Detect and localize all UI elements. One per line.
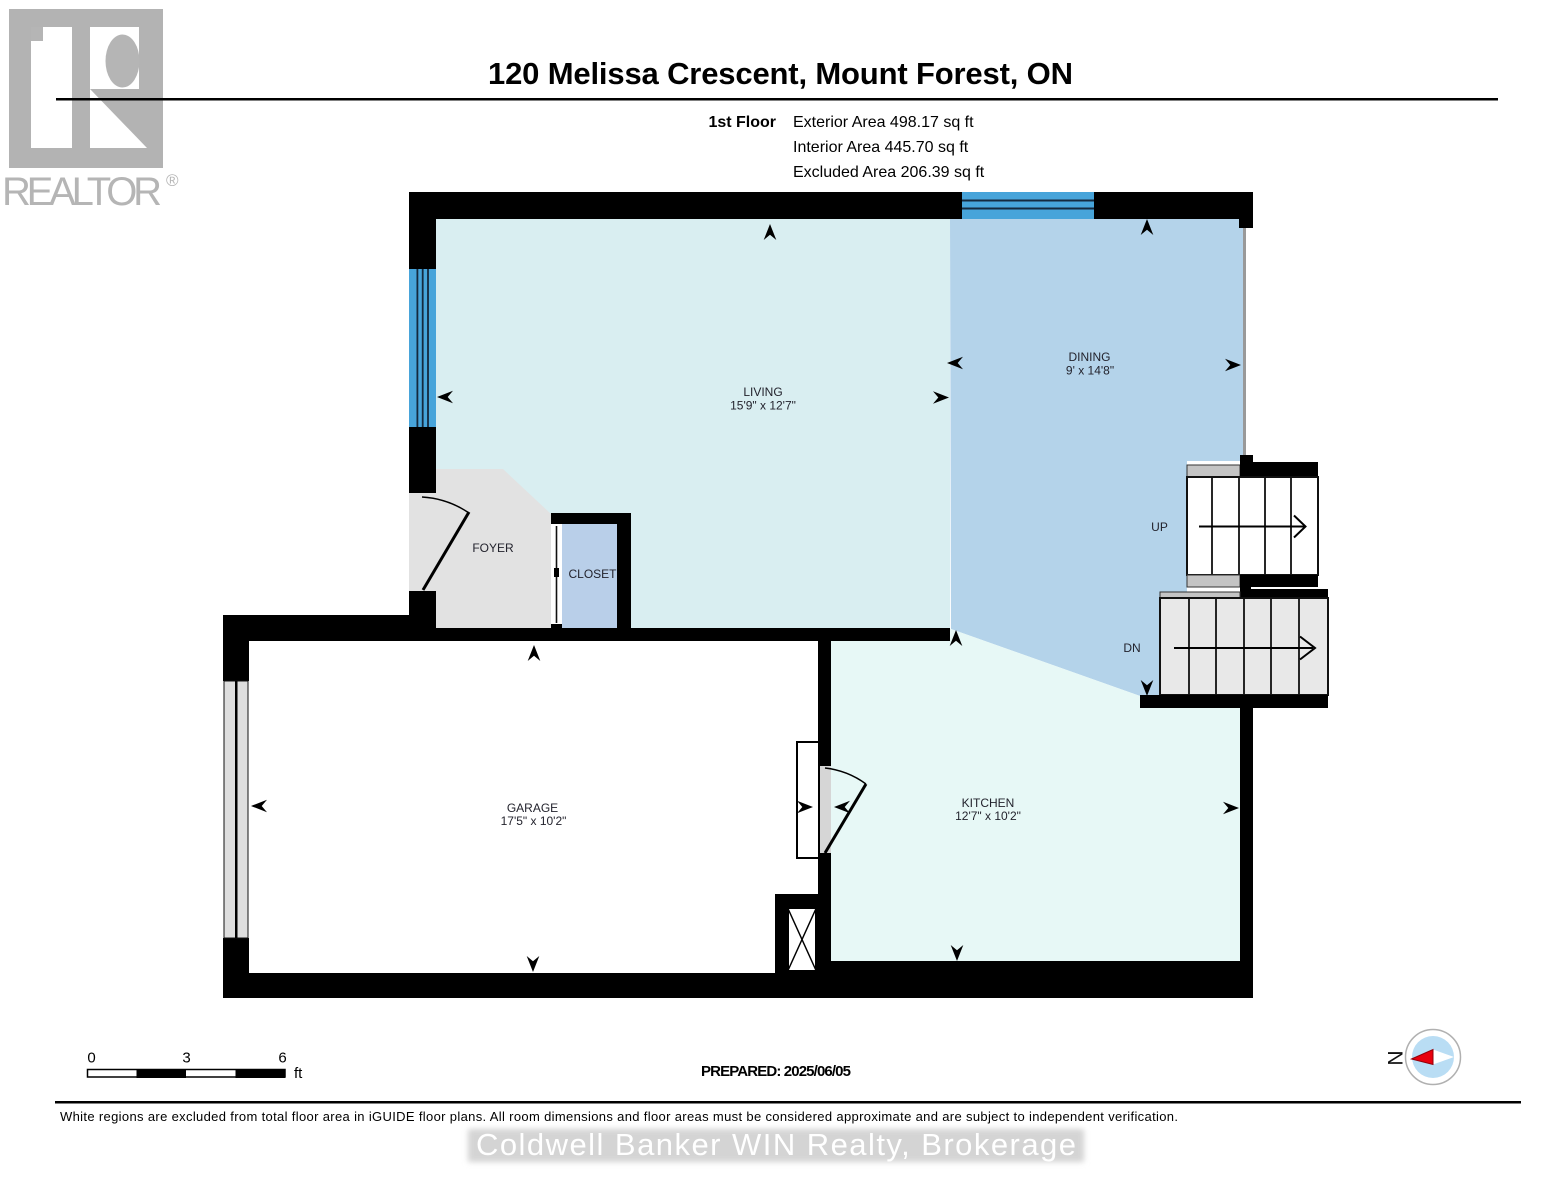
svg-text:17'5" x 10'2": 17'5" x 10'2" bbox=[501, 814, 567, 828]
svg-text:Excluded Area 206.39 sq ft: Excluded Area 206.39 sq ft bbox=[793, 164, 985, 181]
svg-text:6: 6 bbox=[278, 1050, 286, 1067]
svg-text:N: N bbox=[1385, 1050, 1408, 1065]
svg-text:3: 3 bbox=[182, 1050, 190, 1067]
svg-text:15'9" x 12'7": 15'9" x 12'7" bbox=[730, 399, 796, 413]
svg-text:Exterior Area 498.17 sq ft: Exterior Area 498.17 sq ft bbox=[793, 114, 974, 131]
svg-text:1st Floor: 1st Floor bbox=[708, 114, 776, 131]
svg-text:LIVING: LIVING bbox=[743, 385, 782, 399]
svg-text:REALTOR: REALTOR bbox=[2, 170, 162, 214]
svg-text:Interior Area 445.70 sq ft: Interior Area 445.70 sq ft bbox=[793, 139, 969, 156]
svg-text:CLOSET: CLOSET bbox=[568, 567, 617, 581]
svg-text:FOYER: FOYER bbox=[472, 541, 514, 555]
svg-text:9' x 14'8": 9' x 14'8" bbox=[1066, 364, 1114, 378]
svg-text:12'7" x 10'2": 12'7" x 10'2" bbox=[955, 809, 1021, 823]
svg-text:DN: DN bbox=[1123, 641, 1140, 655]
svg-text:ft: ft bbox=[294, 1065, 303, 1082]
svg-text:Coldwell Banker WIN Realty, Br: Coldwell Banker WIN Realty, Brokerage bbox=[476, 1127, 1076, 1162]
svg-text:®: ® bbox=[166, 171, 179, 190]
svg-text:0: 0 bbox=[87, 1050, 95, 1067]
svg-text:DINING: DINING bbox=[1069, 350, 1111, 364]
svg-text:PREPARED: 2025/06/05: PREPARED: 2025/06/05 bbox=[701, 1063, 851, 1080]
svg-text:KITCHEN: KITCHEN bbox=[962, 796, 1015, 810]
svg-text:UP: UP bbox=[1151, 520, 1168, 534]
svg-text:GARAGE: GARAGE bbox=[507, 801, 558, 815]
svg-text:120 Melissa Crescent, Mount Fo: 120 Melissa Crescent, Mount Forest, ON bbox=[488, 56, 1073, 91]
svg-text:White regions are excluded fro: White regions are excluded from total fl… bbox=[60, 1109, 1178, 1124]
